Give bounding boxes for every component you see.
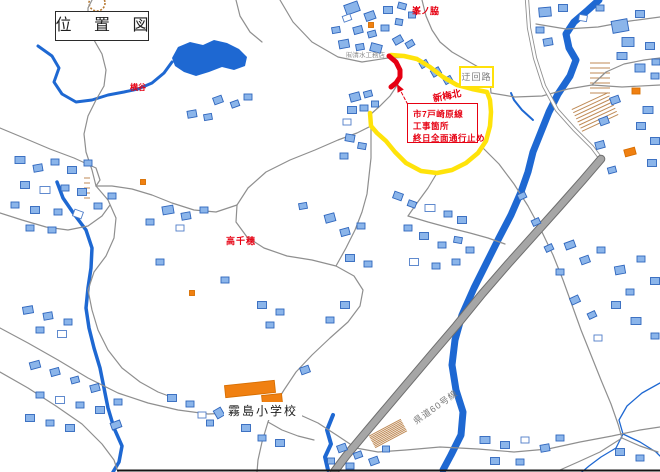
building	[48, 227, 56, 233]
road	[88, 290, 174, 398]
building	[348, 107, 357, 114]
building	[381, 25, 389, 31]
building	[340, 227, 351, 236]
location-map: 位 置 図 峯ノ脇 ㈲清水工務店 迂回路 新梅北 市7戸崎原線 工事箇所 終日全…	[0, 0, 660, 472]
building	[612, 302, 621, 309]
map-canvas	[0, 0, 660, 472]
building	[345, 134, 355, 142]
place-label-yokotani: 横谷	[130, 84, 146, 92]
building	[204, 113, 213, 120]
building	[651, 333, 659, 339]
school-label: 霧島小学校	[224, 402, 302, 420]
company-label: ㈲清水工務店	[346, 53, 385, 60]
road	[236, 126, 371, 472]
building	[364, 11, 376, 22]
building	[198, 412, 206, 418]
building	[181, 212, 191, 220]
building	[11, 202, 19, 208]
building	[78, 189, 87, 196]
building	[46, 420, 54, 426]
building	[58, 331, 67, 338]
building	[90, 383, 101, 392]
building	[244, 94, 252, 100]
building	[332, 26, 341, 33]
building	[556, 435, 564, 441]
building	[31, 207, 40, 214]
building	[607, 166, 616, 174]
building	[614, 265, 625, 275]
building	[631, 318, 641, 325]
building	[491, 458, 500, 465]
building	[392, 35, 403, 46]
detour-route-box: 迂回路	[459, 66, 494, 88]
building	[364, 261, 372, 267]
building	[651, 73, 659, 79]
building	[360, 105, 368, 111]
building	[407, 200, 417, 208]
building	[108, 193, 116, 199]
building	[458, 217, 467, 224]
building	[64, 319, 72, 325]
building	[26, 225, 34, 231]
building	[420, 233, 429, 240]
river	[582, 383, 660, 472]
building	[357, 223, 365, 229]
building	[559, 5, 568, 12]
building	[556, 269, 564, 275]
building	[146, 219, 154, 225]
notice-road-name: 市7戸崎原線	[413, 108, 477, 120]
building	[410, 259, 419, 266]
detour-route-label: 迂回路	[461, 73, 491, 82]
building	[651, 278, 660, 285]
building	[36, 327, 44, 333]
building	[22, 306, 33, 315]
building	[84, 160, 92, 166]
road	[536, 17, 660, 29]
building	[610, 95, 621, 105]
building	[622, 38, 634, 47]
building	[454, 236, 463, 243]
building	[207, 420, 214, 426]
building	[595, 140, 606, 149]
building	[299, 202, 308, 209]
building-orange	[190, 291, 195, 296]
road	[592, 58, 660, 85]
building	[33, 164, 43, 172]
building	[50, 367, 61, 376]
notice-construction-site: 工事箇所	[413, 120, 477, 132]
building	[266, 322, 274, 328]
building	[637, 123, 646, 130]
building	[76, 402, 84, 408]
road	[236, 0, 262, 42]
building	[599, 116, 610, 126]
building	[61, 185, 69, 191]
building	[338, 39, 349, 49]
building	[444, 211, 452, 217]
building	[611, 19, 629, 34]
building	[372, 101, 379, 107]
road	[0, 372, 118, 472]
building	[648, 160, 657, 167]
building	[635, 64, 645, 72]
building	[342, 14, 352, 22]
building	[68, 167, 77, 174]
road	[483, 148, 622, 438]
building	[404, 225, 412, 231]
building	[521, 437, 529, 443]
building	[346, 463, 354, 469]
building	[230, 100, 240, 108]
building	[636, 455, 644, 461]
building	[452, 259, 460, 265]
building	[356, 43, 365, 50]
building	[40, 187, 50, 194]
building	[358, 142, 367, 149]
building	[43, 312, 53, 320]
building	[70, 376, 79, 384]
building	[162, 205, 174, 215]
building	[258, 435, 266, 441]
building	[96, 407, 105, 414]
building	[393, 191, 404, 201]
building	[213, 407, 224, 419]
building	[405, 39, 415, 48]
road	[622, 438, 658, 452]
building	[536, 27, 544, 33]
building	[349, 92, 361, 102]
building	[637, 256, 645, 262]
building	[340, 153, 348, 159]
building	[369, 456, 380, 466]
building-orange	[632, 88, 640, 94]
notice-road-closed: 終日全面通行止め	[413, 132, 477, 144]
building	[186, 401, 194, 407]
building	[200, 207, 208, 213]
building	[432, 263, 440, 269]
building	[425, 205, 435, 212]
building	[326, 317, 334, 323]
building	[276, 309, 284, 315]
building	[539, 7, 552, 17]
building	[21, 182, 30, 189]
building-orange	[141, 180, 146, 185]
building	[516, 459, 524, 465]
building	[176, 225, 184, 231]
building	[26, 415, 35, 422]
building	[36, 392, 44, 398]
building	[616, 449, 625, 456]
building	[66, 425, 75, 432]
river	[623, 434, 660, 456]
road	[268, 422, 314, 440]
building	[328, 458, 335, 464]
building	[594, 335, 602, 341]
building	[580, 255, 591, 265]
building	[544, 244, 554, 253]
building	[353, 25, 364, 34]
lake	[172, 40, 247, 76]
building	[242, 425, 251, 432]
building	[652, 59, 660, 65]
building	[94, 203, 102, 209]
building	[540, 444, 550, 452]
construction-notice-box: 市7戸崎原線 工事箇所 終日全面通行止め	[407, 103, 478, 143]
road	[88, 186, 116, 290]
building	[597, 247, 605, 253]
building	[587, 311, 597, 320]
building	[341, 302, 350, 309]
building	[397, 2, 406, 10]
building	[168, 395, 177, 402]
building	[56, 397, 65, 404]
building	[363, 90, 372, 98]
building	[258, 302, 267, 309]
building-orange	[624, 147, 636, 157]
place-label-takachiho: 高千穂	[226, 237, 256, 246]
closed-road-segment	[389, 56, 400, 87]
building	[156, 259, 164, 265]
building	[346, 255, 355, 262]
building	[343, 119, 351, 125]
building	[54, 209, 62, 215]
building	[29, 360, 40, 369]
place-label-minenowaki: 峯ノ脇	[412, 7, 439, 16]
building	[466, 247, 474, 253]
arrow-head-icon	[397, 84, 404, 93]
building	[501, 442, 510, 449]
building	[187, 110, 197, 118]
building	[596, 5, 604, 11]
building	[213, 95, 224, 105]
building	[651, 138, 660, 145]
building	[543, 38, 553, 46]
building	[276, 440, 285, 447]
building	[15, 157, 25, 164]
building	[383, 446, 390, 452]
building	[384, 7, 393, 14]
building	[221, 277, 229, 283]
building	[646, 43, 655, 50]
building	[73, 209, 84, 219]
building	[636, 11, 645, 18]
building	[579, 14, 588, 21]
building	[643, 107, 653, 114]
building	[438, 242, 446, 248]
building	[324, 213, 336, 223]
building	[617, 53, 627, 60]
building-orange	[369, 23, 374, 28]
building	[626, 289, 634, 295]
building	[564, 240, 576, 250]
building	[114, 399, 122, 405]
building	[344, 1, 361, 15]
building	[51, 159, 59, 165]
building	[480, 437, 490, 444]
map-title-box: 位 置 図	[55, 11, 149, 41]
prefectural-road-core	[334, 159, 601, 472]
building	[367, 30, 376, 38]
map-title: 位 置 図	[56, 18, 158, 34]
building	[395, 18, 403, 25]
